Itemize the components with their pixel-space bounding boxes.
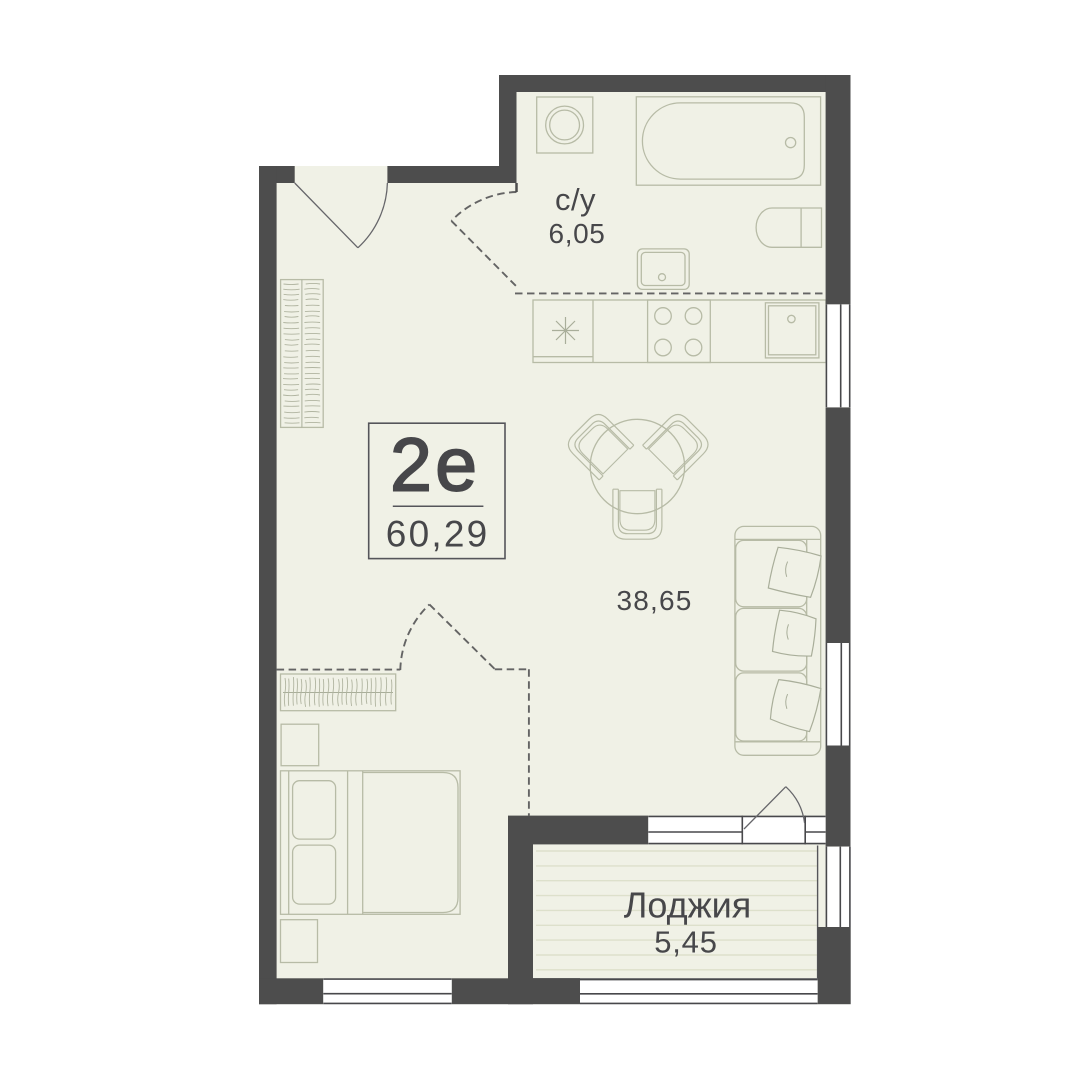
svg-text:38,65: 38,65 bbox=[616, 585, 692, 616]
svg-text:Лоджия: Лоджия bbox=[624, 884, 752, 925]
svg-text:с/у: с/у bbox=[555, 182, 596, 217]
svg-text:2e: 2e bbox=[390, 422, 480, 506]
svg-text:5,45: 5,45 bbox=[654, 925, 718, 960]
svg-text:6,05: 6,05 bbox=[549, 218, 606, 249]
svg-text:60,29: 60,29 bbox=[386, 514, 490, 555]
